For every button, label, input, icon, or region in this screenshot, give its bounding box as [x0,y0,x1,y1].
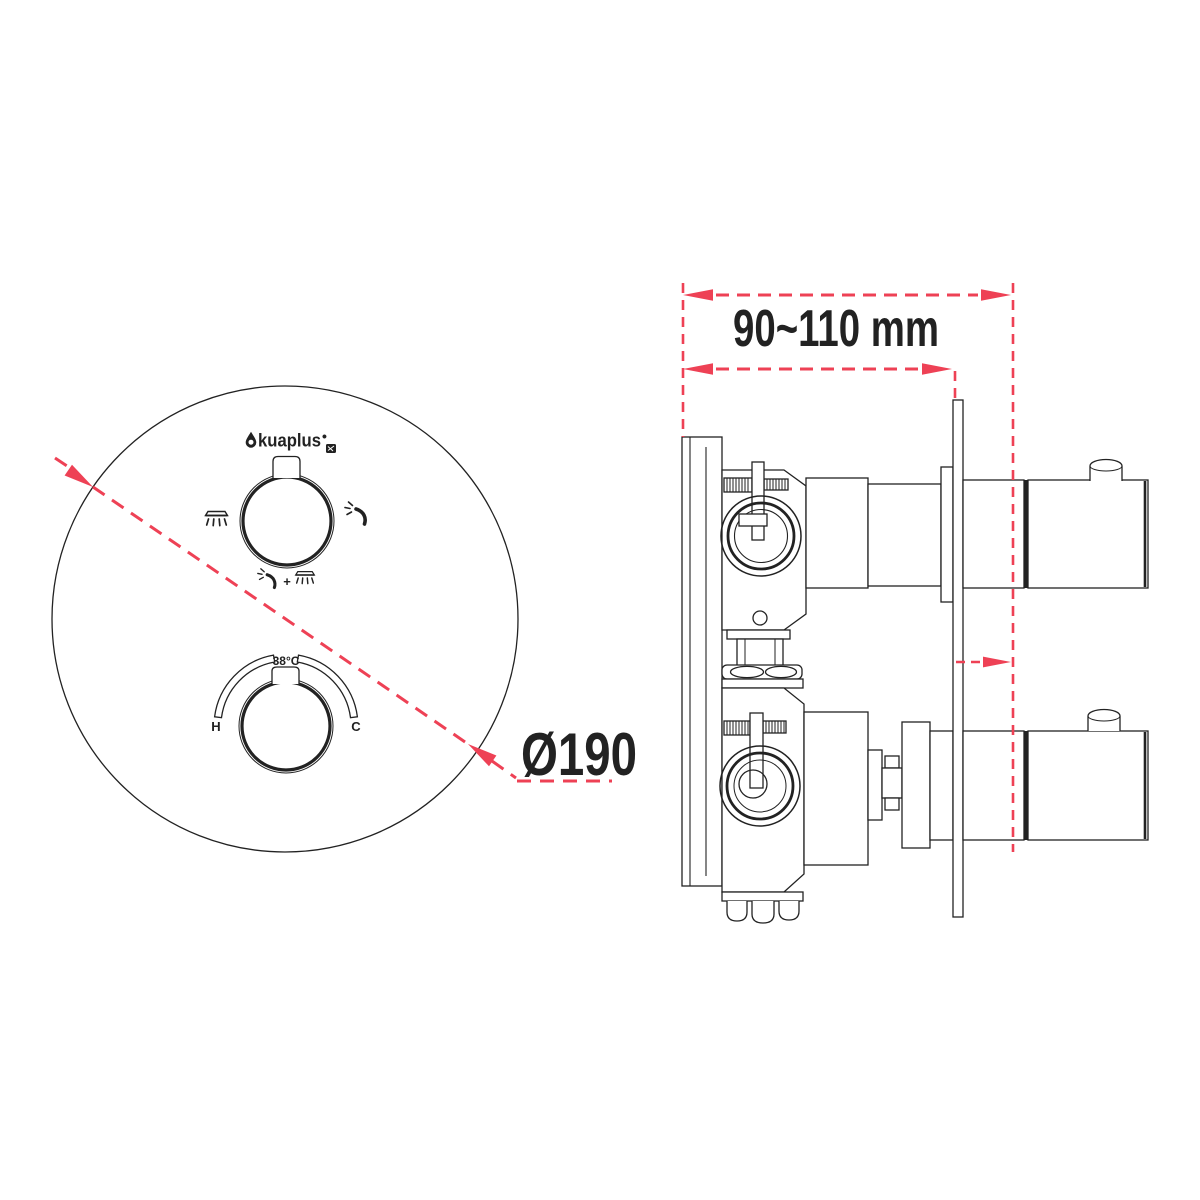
connecting-pipe [722,630,802,679]
valve-dimension-diagram: kuaplus • + 38°C H C [0,0,1200,1200]
bottom-mounting-flange [902,722,930,848]
top-cartridge-cylinder [868,484,941,586]
bottom-clamp-bar [750,713,763,788]
hot-label: H [211,719,220,734]
side-view: 90~110 mm [682,283,1148,923]
top-valve-assembly [721,462,953,630]
brand-bullet: • [322,428,327,444]
wall-bracket [682,437,722,886]
bottom-housing-collar [722,679,803,688]
diameter-arrowhead-top [65,465,93,487]
trim-plate [953,400,963,917]
front-view: kuaplus • + 38°C H C [52,386,637,852]
bottom-spindle-step-upper [885,756,899,768]
bottom-handle [1028,731,1148,840]
port-keyway [739,514,767,526]
brand-wordmark: kuaplus [258,431,321,451]
bottom-trim-sleeve [963,731,1024,840]
top-handle-assembly [963,460,1148,588]
top-clamp-bar [752,462,764,540]
depth-label: 90~110 mm [733,300,939,358]
temperature-label: 38°C [273,654,300,668]
top-handle-button [1090,460,1122,481]
bottom-trim-sleeve-rear [930,731,953,840]
bottom-valve-assembly [720,679,953,923]
bottom-spindle-step-lower [885,798,899,810]
diameter-label: Ø190 [521,721,637,788]
plate-depth-arrow [956,657,1011,668]
top-handle [1028,480,1148,588]
set-screw-hole [753,611,767,625]
bottom-base-band [722,892,803,901]
bottom-handle-assembly [963,710,1148,841]
top-cartridge-body [806,478,868,588]
bottom-cartridge-body [804,712,868,865]
diverter-knob-tab [273,457,300,479]
inlet-hex-lobes [727,901,799,923]
logo-mark-icon [326,444,336,453]
bottom-spindle [882,768,902,798]
bottom-cartridge-neck [868,750,882,820]
top-mounting-flange [941,467,953,602]
technical-drawing-canvas: kuaplus • + 38°C H C [0,0,1200,1200]
cold-label: C [351,719,361,734]
depth-dimension-min [683,363,952,375]
thermostat-knob-tab [272,667,299,684]
top-trim-sleeve [963,480,1024,588]
bottom-handle-button [1088,710,1120,732]
hex-nuts [722,665,802,679]
plus-sign: + [283,574,291,589]
